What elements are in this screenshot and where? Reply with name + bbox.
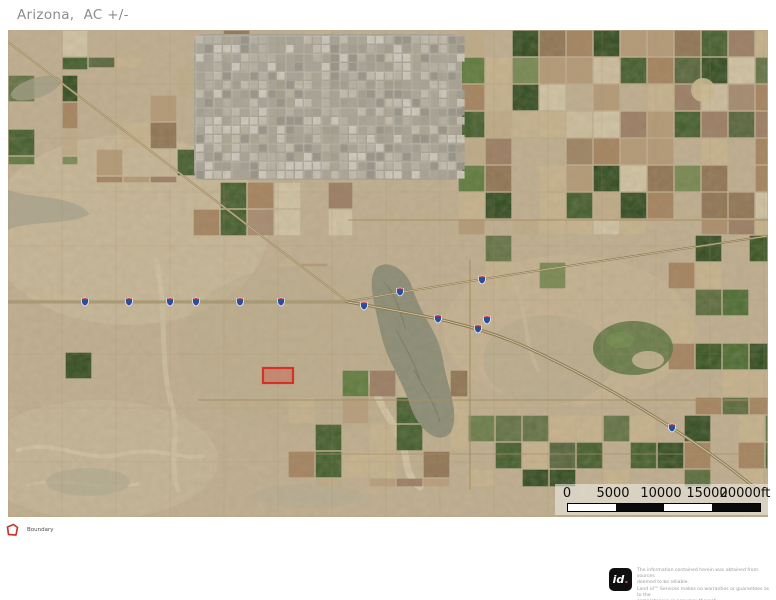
disclaimer-text: The information contained herein was obt… bbox=[637, 568, 771, 600]
parcel-boundary[interactable] bbox=[263, 368, 293, 383]
report-page: Arizona, AC +/- bbox=[0, 0, 776, 600]
land-id-logo: id. bbox=[609, 568, 632, 591]
legend: Boundary bbox=[5, 523, 54, 537]
logo-text: id bbox=[613, 573, 625, 586]
legend-item-boundary: Boundary bbox=[27, 527, 54, 533]
satellite-imagery[interactable] bbox=[8, 30, 768, 517]
scale-label: 0 bbox=[563, 486, 571, 501]
disclaimer-line: Land id™ Services makes no warranties or… bbox=[637, 587, 771, 599]
disclaimer-line: The information contained herein was obt… bbox=[637, 568, 771, 580]
scale-label: 5000 bbox=[596, 486, 629, 501]
boundary-polygon-icon bbox=[5, 523, 20, 537]
disclaimer: id. The information contained herein was… bbox=[609, 568, 771, 600]
scale-label: 20000ft bbox=[720, 486, 771, 501]
terrain-texture bbox=[8, 30, 768, 517]
map-scale-bar: 0 5000 10000 15000 20000ft bbox=[555, 484, 768, 515]
scale-bar-segments bbox=[567, 503, 761, 512]
page-title: Arizona, AC +/- bbox=[17, 7, 129, 23]
satellite-map[interactable]: 0 5000 10000 15000 20000ft bbox=[8, 30, 768, 517]
scale-label: 10000 bbox=[640, 486, 681, 501]
logo-dot: . bbox=[624, 573, 628, 586]
